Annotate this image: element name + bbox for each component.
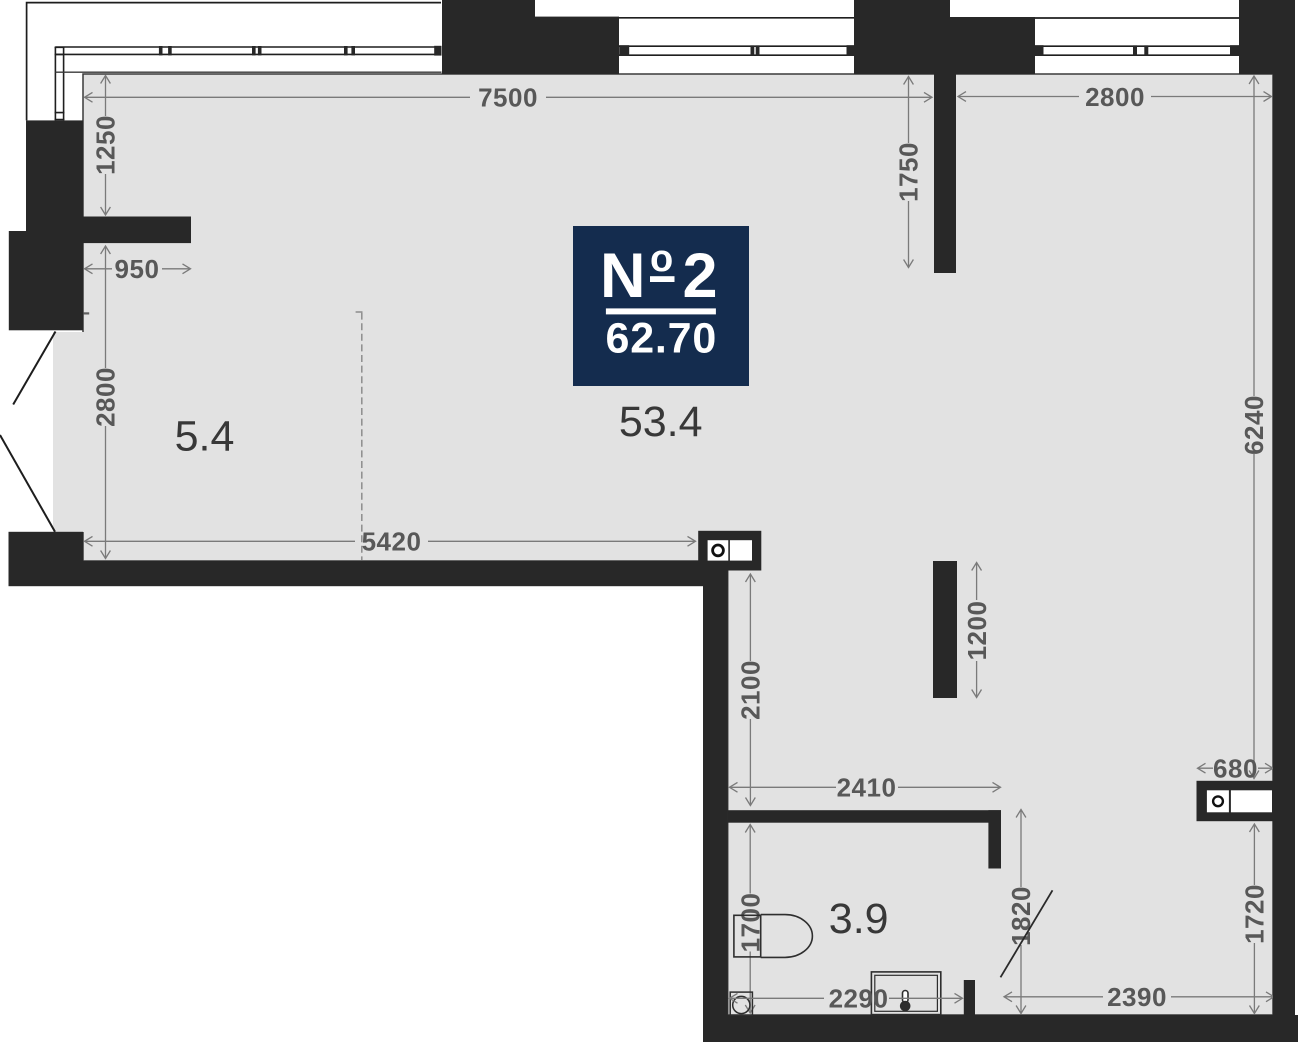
svg-text:7500: 7500 [478, 83, 538, 113]
svg-text:5.4: 5.4 [175, 413, 235, 461]
svg-text:1720: 1720 [1240, 884, 1270, 944]
svg-text:o: o [650, 238, 673, 280]
svg-text:2100: 2100 [736, 660, 766, 720]
svg-text:2800: 2800 [91, 367, 121, 427]
svg-text:6240: 6240 [1239, 395, 1269, 455]
svg-text:2390: 2390 [1107, 982, 1167, 1012]
svg-text:1820: 1820 [1006, 886, 1036, 946]
svg-text:1250: 1250 [91, 115, 121, 175]
svg-text:1750: 1750 [894, 142, 924, 202]
svg-text:62.70: 62.70 [605, 315, 717, 363]
svg-text:2: 2 [683, 241, 718, 311]
svg-text:2290: 2290 [829, 984, 889, 1014]
svg-text:680: 680 [1213, 754, 1258, 784]
svg-text:3.9: 3.9 [829, 895, 889, 943]
svg-text:2800: 2800 [1085, 82, 1145, 112]
svg-text:950: 950 [115, 254, 160, 284]
svg-text:53.4: 53.4 [619, 398, 703, 446]
svg-text:N: N [600, 241, 646, 311]
svg-text:1200: 1200 [962, 601, 992, 661]
svg-text:2410: 2410 [837, 773, 897, 803]
svg-text:5420: 5420 [362, 527, 422, 557]
